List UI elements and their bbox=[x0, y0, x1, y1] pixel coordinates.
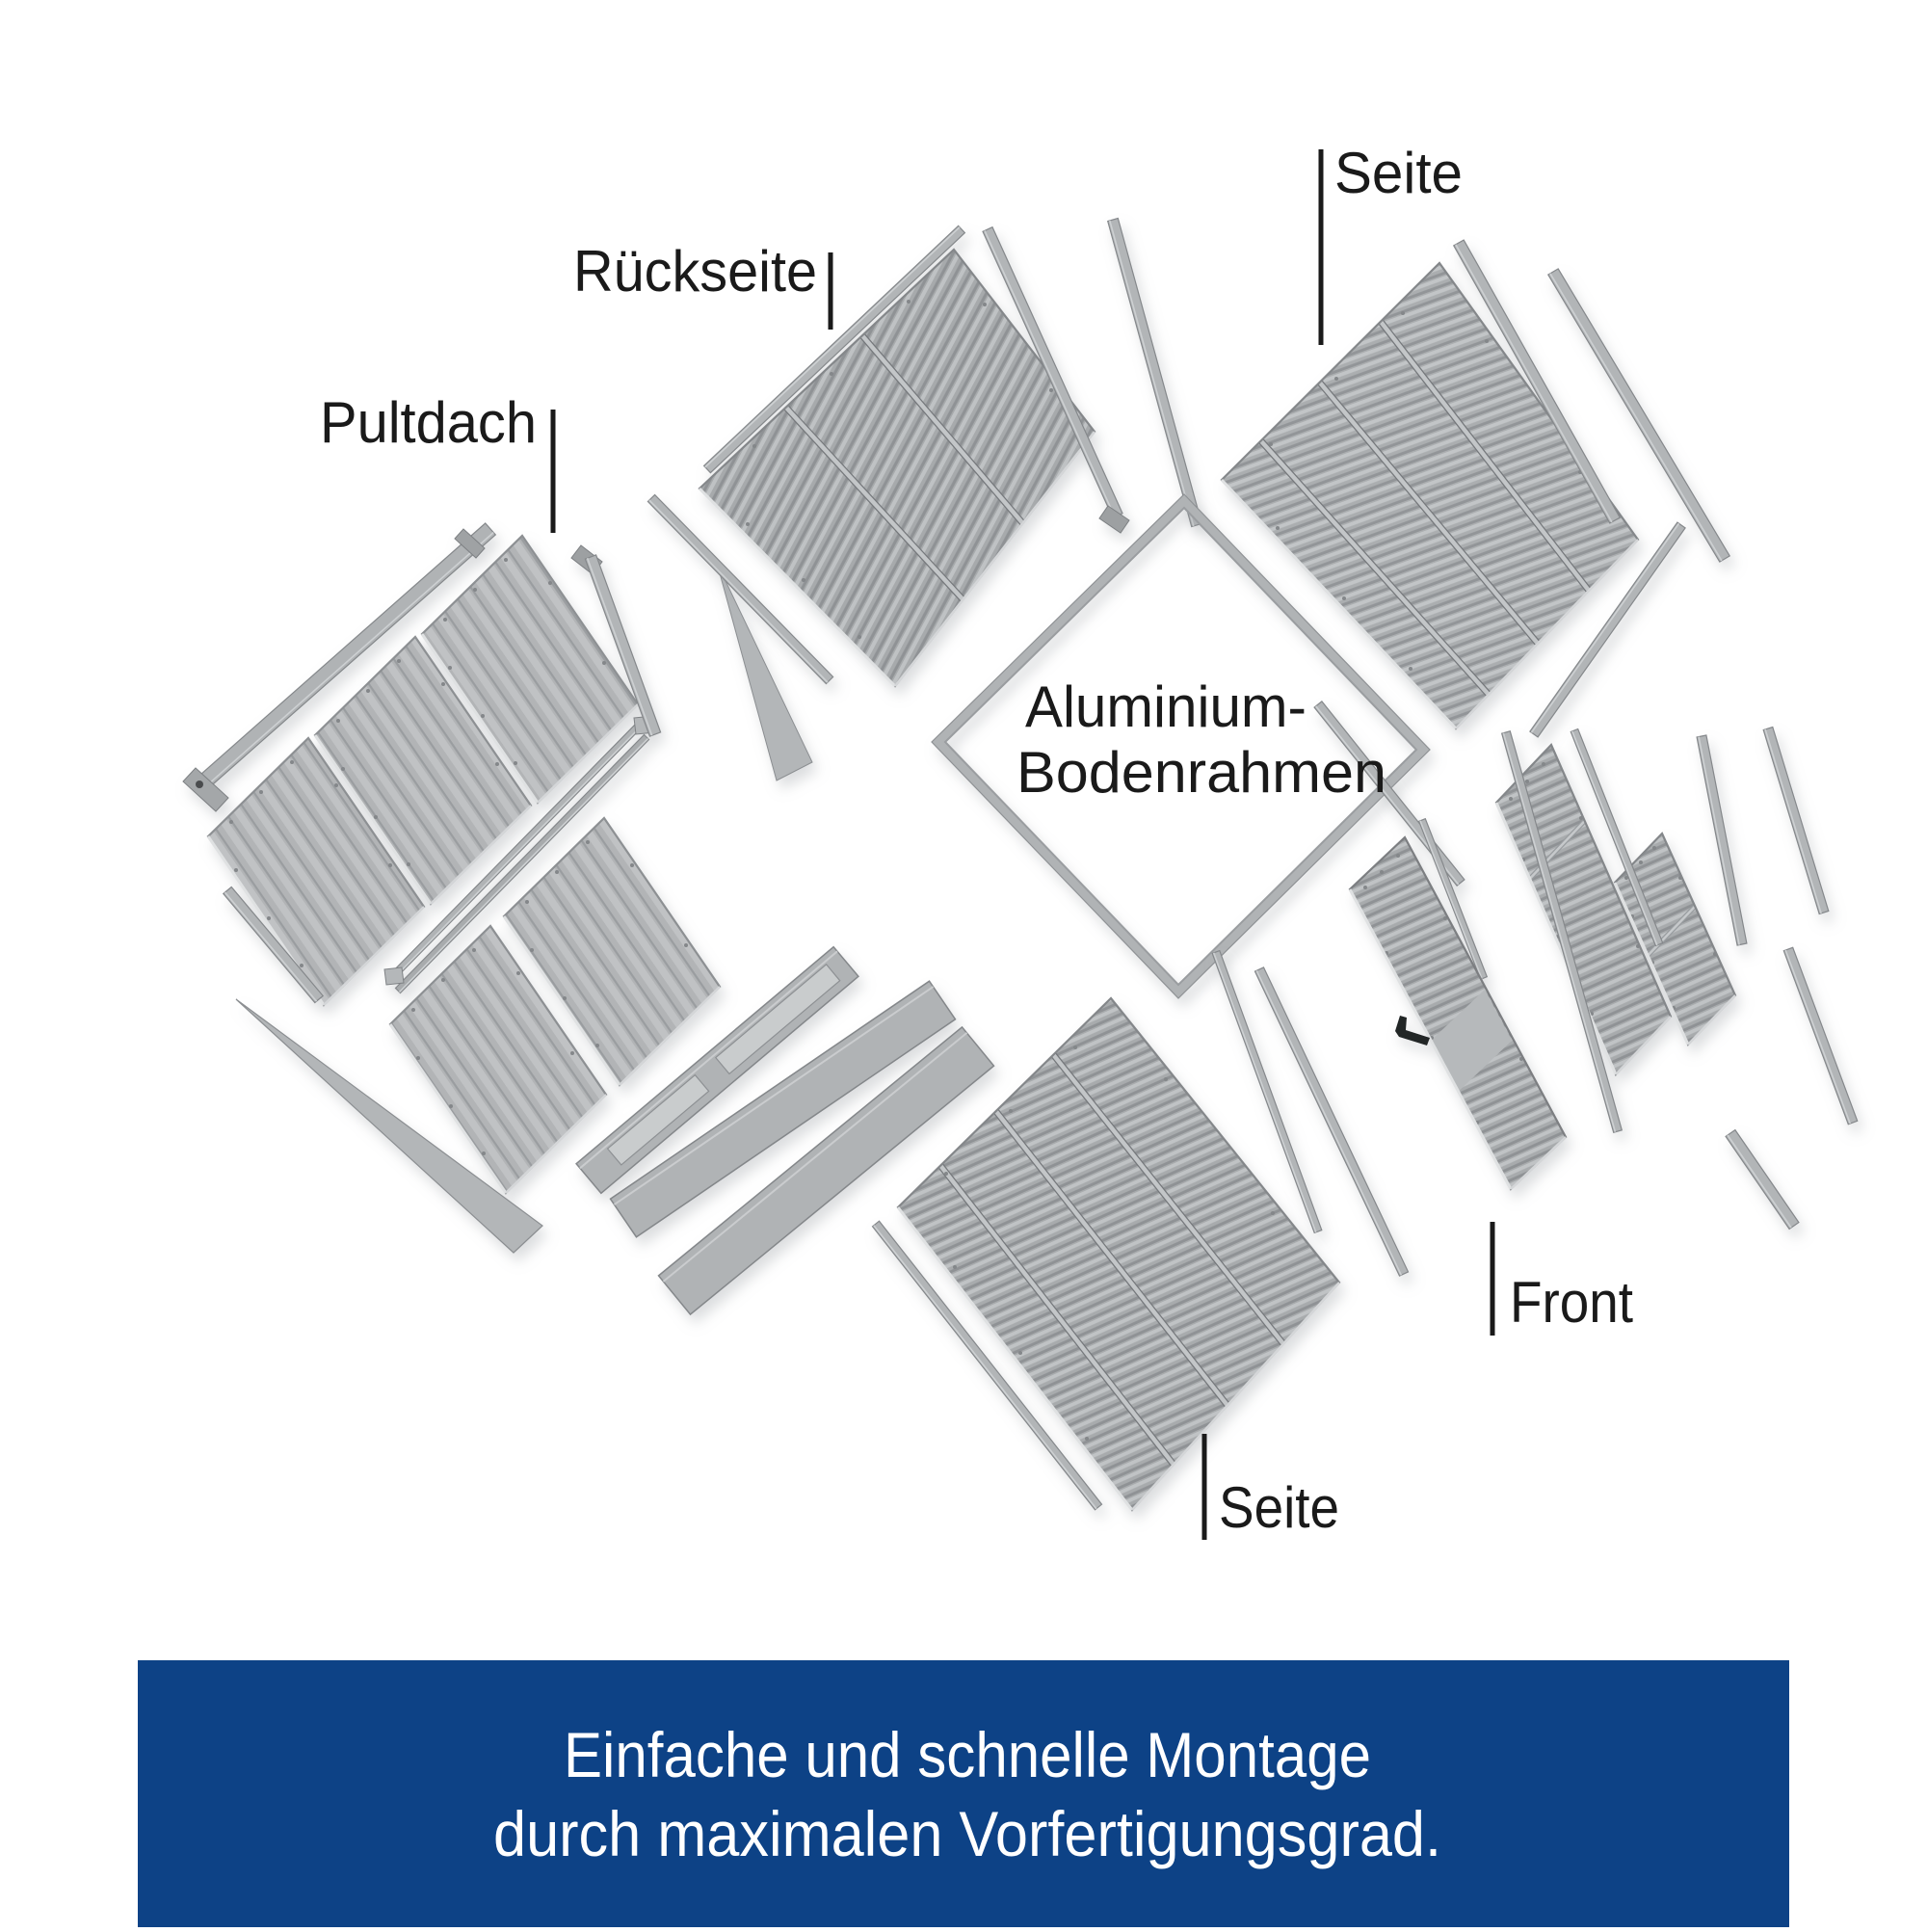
svg-text:Front: Front bbox=[1510, 1270, 1633, 1335]
svg-text:Einfache und schnelle Montage: Einfache und schnelle Montage bbox=[564, 1719, 1371, 1790]
svg-text:Rückseite: Rückseite bbox=[573, 239, 817, 304]
svg-text:durch maximalen Vorfertigungsg: durch maximalen Vorfertigungsgrad. bbox=[493, 1798, 1441, 1869]
svg-text:Pultdach: Pultdach bbox=[320, 390, 537, 455]
svg-text:Seite: Seite bbox=[1219, 1475, 1339, 1540]
svg-text:Aluminium-: Aluminium- bbox=[1025, 675, 1307, 739]
svg-text:Seite: Seite bbox=[1334, 141, 1463, 205]
svg-text:Bodenrahmen: Bodenrahmen bbox=[1016, 740, 1386, 805]
